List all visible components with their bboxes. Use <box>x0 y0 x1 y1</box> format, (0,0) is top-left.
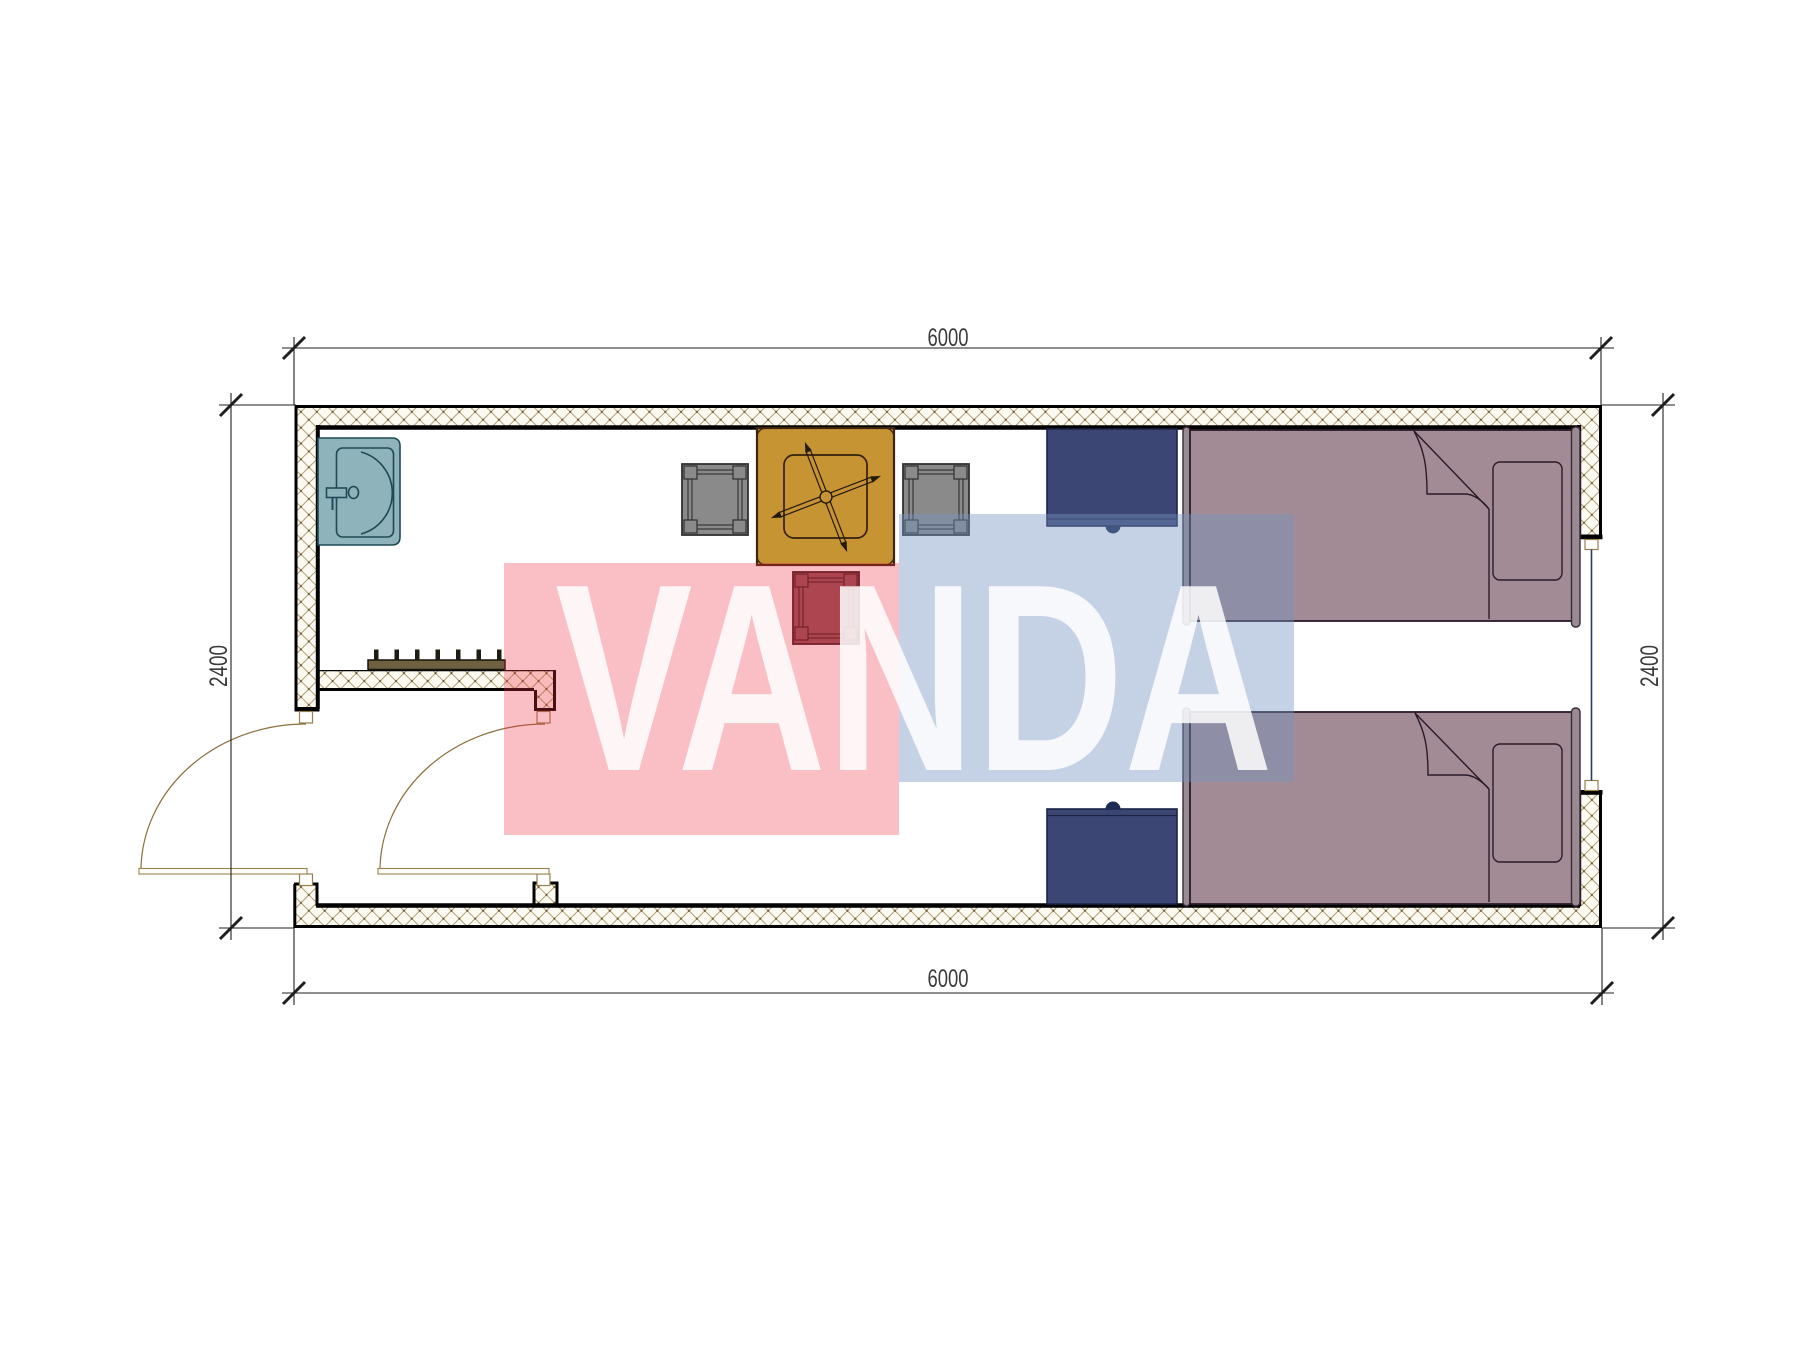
svg-text:2400: 2400 <box>1636 645 1664 687</box>
svg-text:VANDA: VANDA <box>555 528 1273 827</box>
svg-text:6000: 6000 <box>928 324 969 352</box>
svg-text:6000: 6000 <box>928 965 969 993</box>
svg-text:2400: 2400 <box>205 645 233 687</box>
